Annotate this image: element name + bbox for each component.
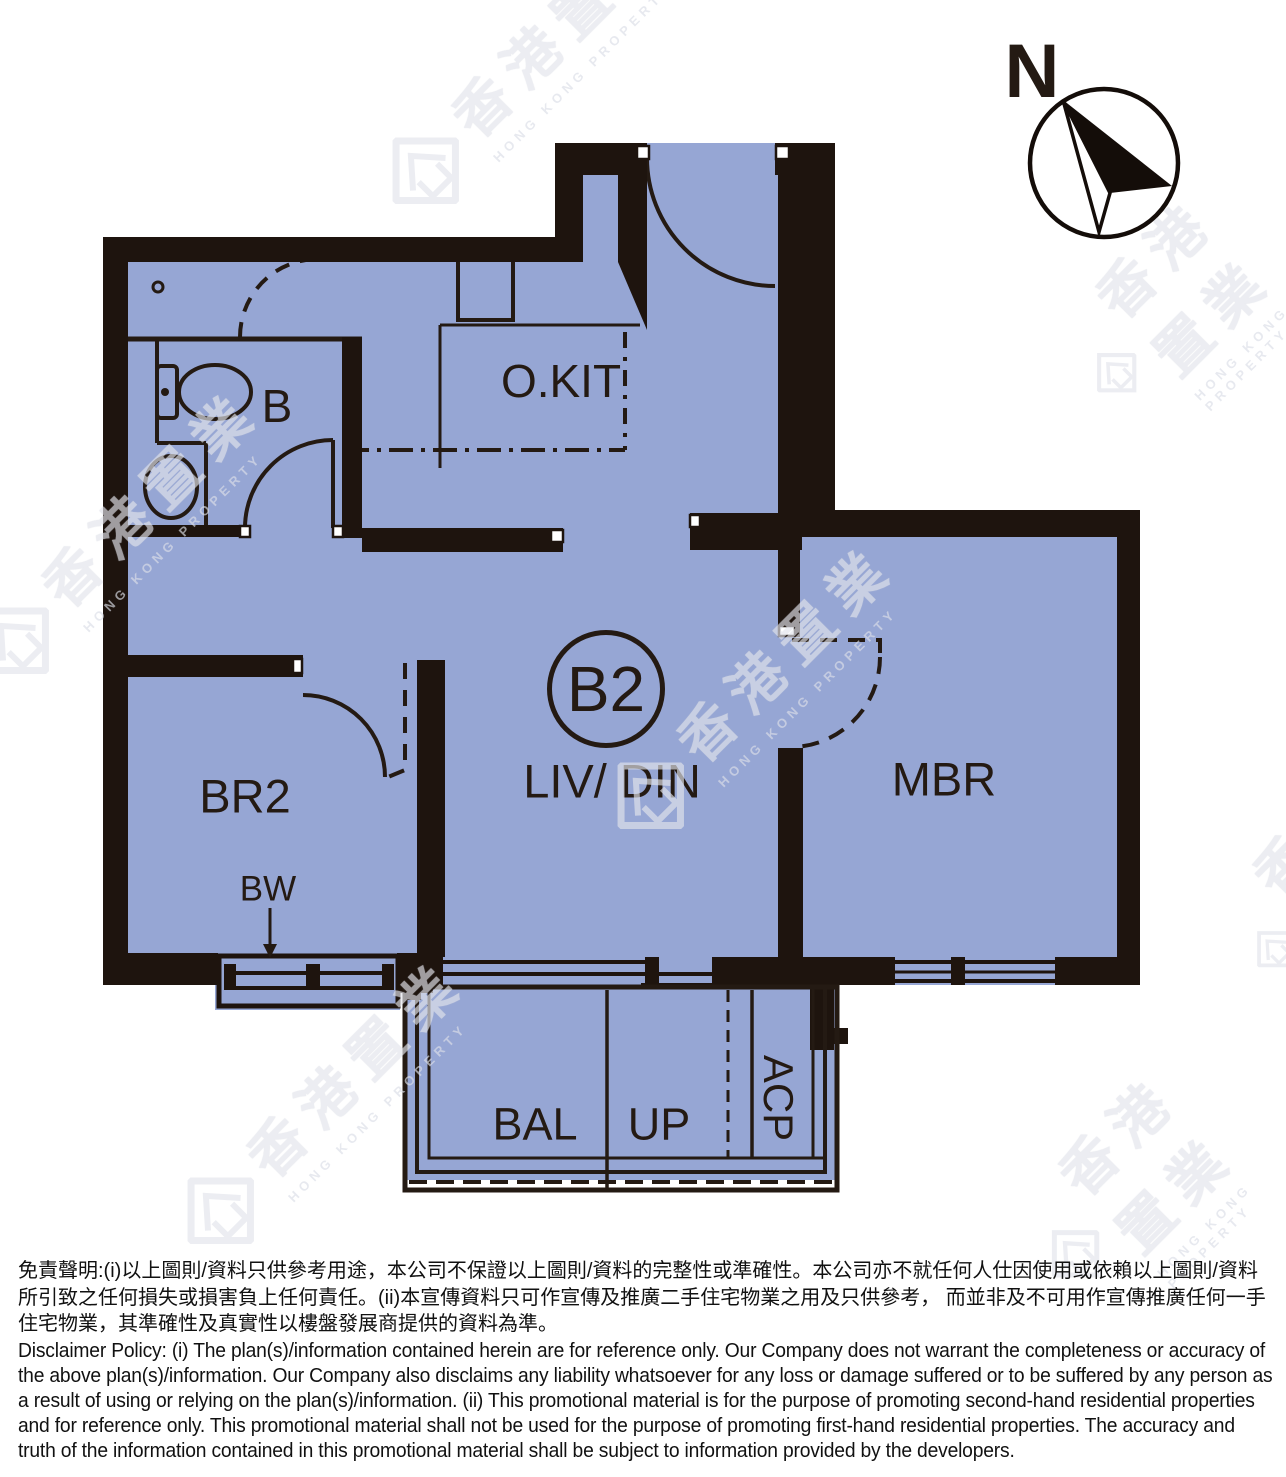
label-balcony: BAL [492, 1102, 577, 1147]
disclaimer-chinese: 免責聲明:(i)以上圖則/資料只供參考用途，本公司不保證以上圖則/資料的完整性或… [18, 1258, 1274, 1338]
disclaimer-english: Disclaimer Policy: (i) The plan(s)/infor… [18, 1338, 1273, 1463]
label-open-kitchen: O.KIT [501, 358, 621, 404]
label-living-dining: LIV/ DIN [523, 758, 701, 805]
label-up: UP [628, 1102, 691, 1147]
unit-badge: B2 [547, 630, 665, 748]
bay-window [219, 956, 398, 1006]
label-bay-window: BW [240, 872, 296, 907]
label-ac-platform: ACP [757, 1055, 799, 1141]
label-bathroom: B [262, 383, 293, 429]
label-master-bedroom: MBR [892, 756, 996, 803]
floor-plan-drawing [0, 0, 1286, 1477]
label-north: N [1005, 34, 1060, 110]
label-bedroom2: BR2 [199, 773, 290, 820]
disclaimer-block: 免責聲明:(i)以上圖則/資料只供參考用途，本公司不保證以上圖則/資料的完整性或… [18, 1258, 1274, 1463]
mbr-window [883, 957, 1067, 985]
floor-plan-page: B O.KIT B2 LIV/ DIN MBR BR2 BW BAL UP AC… [0, 0, 1286, 1477]
